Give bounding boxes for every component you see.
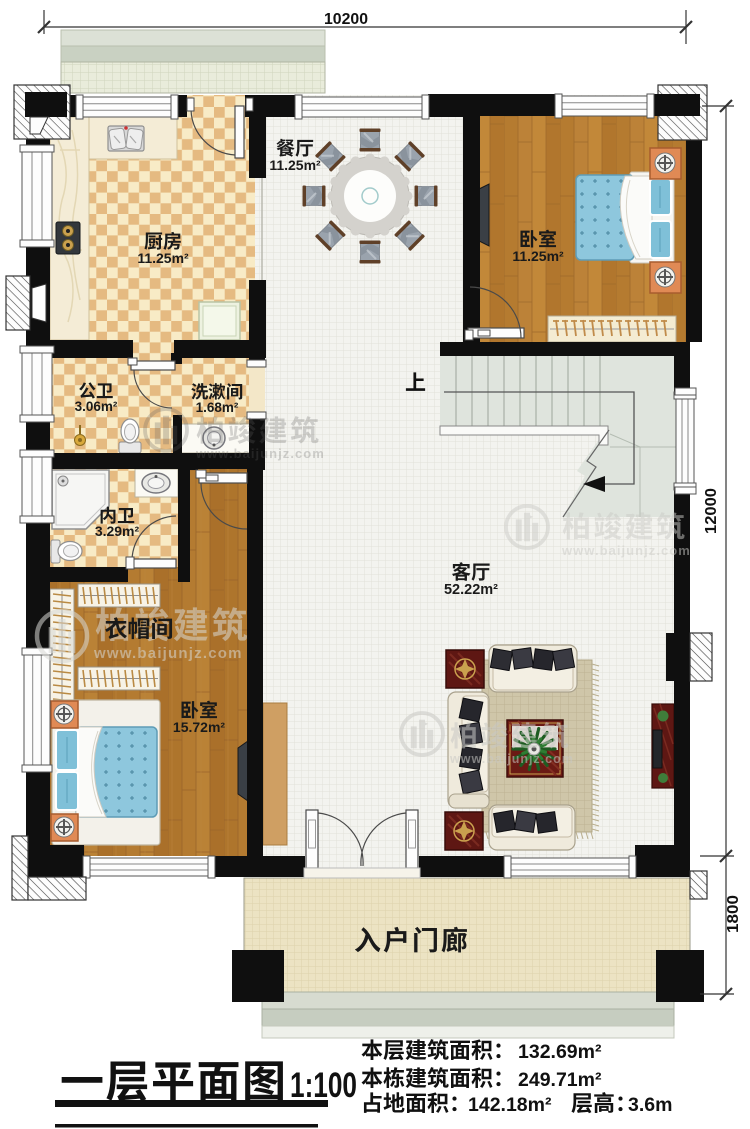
svg-text:www.baijunjz.com: www.baijunjz.com — [449, 752, 574, 766]
svg-text:52.22m²: 52.22m² — [444, 582, 498, 598]
svg-text:1:100: 1:100 — [290, 1066, 357, 1105]
svg-text:132.69m²: 132.69m² — [518, 1041, 602, 1063]
svg-text:3.6m: 3.6m — [628, 1094, 672, 1116]
svg-text:15.72m²: 15.72m² — [173, 719, 225, 735]
svg-text:12000: 12000 — [703, 488, 720, 534]
svg-text:11.25m²: 11.25m² — [137, 250, 189, 266]
svg-text:3.29m²: 3.29m² — [95, 523, 140, 539]
svg-text:www.baijunjz.com: www.baijunjz.com — [195, 446, 325, 461]
svg-text:1.68m²: 1.68m² — [196, 400, 239, 415]
svg-text:249.71m²: 249.71m² — [518, 1069, 602, 1091]
svg-text:11.25m²: 11.25m² — [269, 157, 321, 173]
svg-text:10200: 10200 — [324, 11, 368, 28]
svg-text:www.baijunjz.com: www.baijunjz.com — [93, 645, 243, 662]
svg-text:1800: 1800 — [725, 895, 742, 933]
svg-text:www.baijunjz.com: www.baijunjz.com — [561, 543, 691, 558]
svg-text:11.25m²: 11.25m² — [512, 248, 564, 264]
svg-text:3.06m²: 3.06m² — [75, 399, 118, 414]
svg-text:142.18m²: 142.18m² — [468, 1094, 552, 1116]
